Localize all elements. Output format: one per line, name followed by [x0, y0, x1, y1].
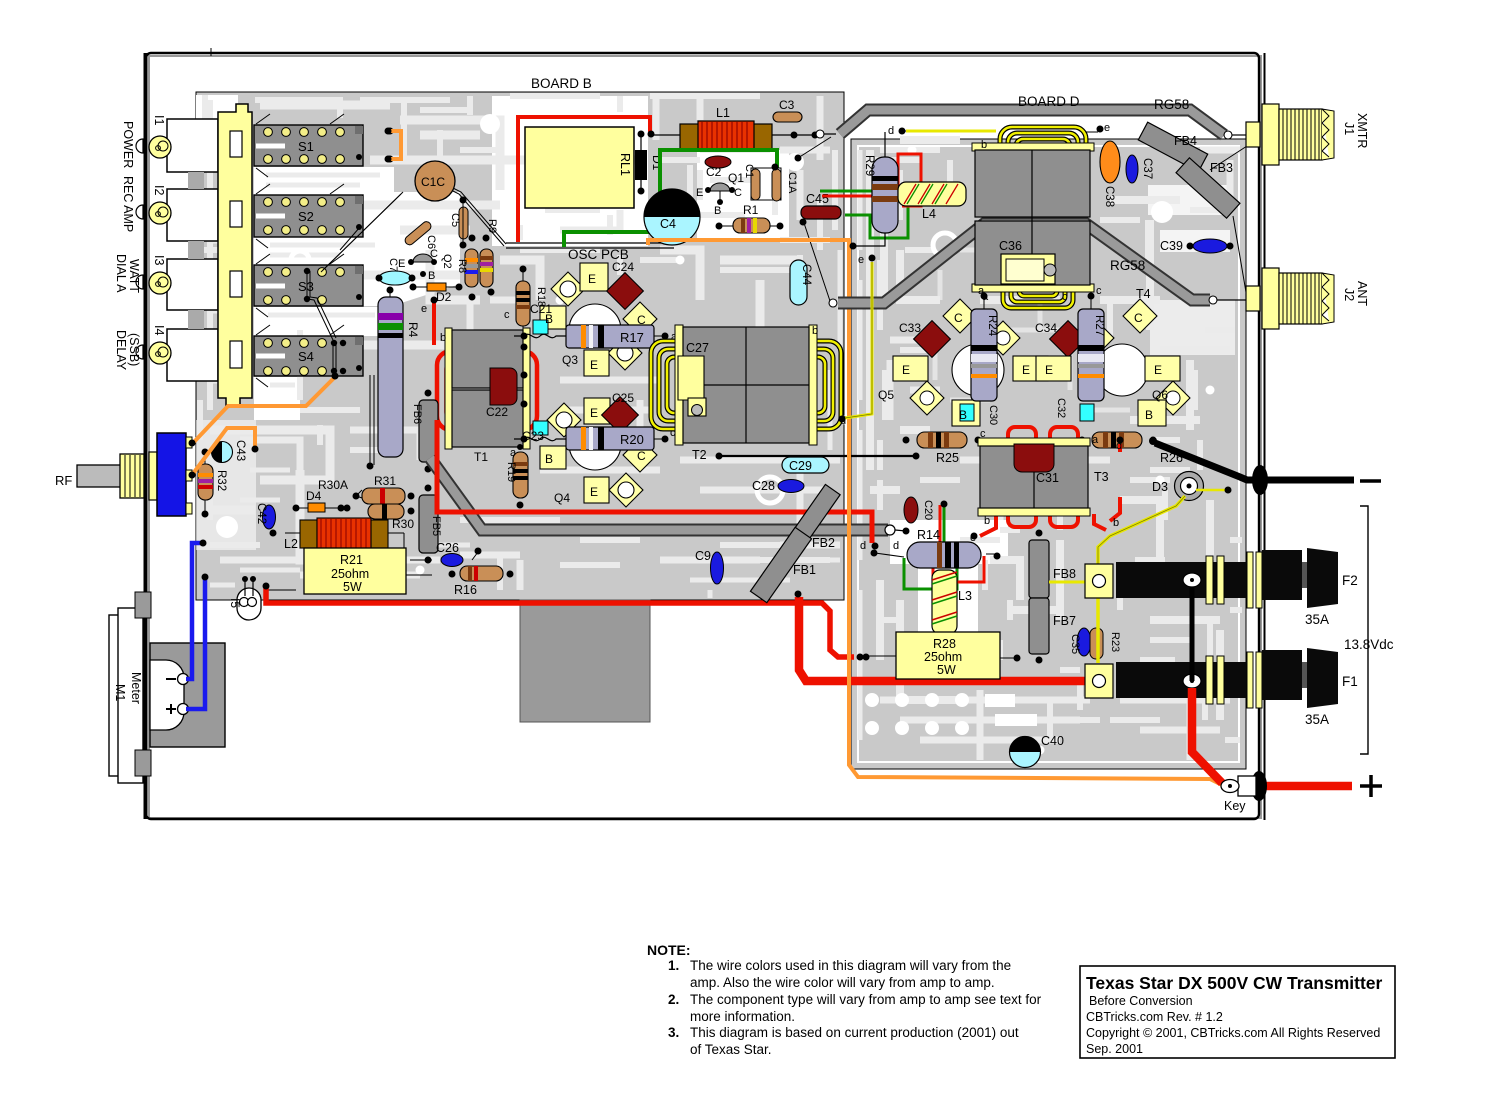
svg-text:E: E — [696, 187, 703, 199]
svg-text:Q3: Q3 — [562, 353, 578, 367]
svg-text:35A: 35A — [1305, 712, 1329, 727]
svg-text:Key: Key — [1224, 799, 1246, 813]
svg-text:R25: R25 — [936, 451, 959, 465]
svg-text:R30A: R30A — [318, 478, 348, 492]
svg-text:R29: R29 — [863, 155, 875, 176]
svg-text:L3: L3 — [958, 589, 972, 603]
svg-text:E: E — [1045, 363, 1053, 377]
svg-text:b: b — [981, 139, 987, 151]
svg-text:C: C — [954, 311, 963, 325]
svg-text:C30: C30 — [987, 405, 999, 425]
svg-text:C32: C32 — [1055, 398, 1067, 418]
svg-text:C21: C21 — [530, 302, 552, 316]
svg-text:D4: D4 — [306, 489, 322, 503]
svg-text:d: d — [893, 540, 899, 552]
svg-text:R31: R31 — [374, 474, 396, 488]
svg-text:OSC PCB: OSC PCB — [568, 247, 629, 262]
svg-text:J2: J2 — [1342, 288, 1356, 301]
svg-text:E: E — [1154, 363, 1162, 377]
svg-text:M1: M1 — [113, 684, 127, 701]
svg-text:C38: C38 — [1103, 186, 1115, 207]
svg-text:more information.: more information. — [690, 1009, 795, 1024]
svg-text:C: C — [734, 187, 742, 199]
svg-text:E: E — [1022, 363, 1030, 377]
svg-text:C4: C4 — [660, 217, 676, 231]
svg-text:REC AMP: REC AMP — [121, 176, 135, 232]
svg-text:T4: T4 — [1136, 287, 1151, 301]
svg-text:The component type will vary f: The component type will vary from amp to… — [690, 992, 1042, 1007]
svg-text:2.: 2. — [668, 992, 679, 1007]
svg-text:13.8Vdc: 13.8Vdc — [1344, 637, 1394, 652]
svg-text:S3: S3 — [298, 279, 314, 294]
svg-text:C34: C34 — [1035, 321, 1057, 335]
svg-text:C39: C39 — [1160, 239, 1183, 253]
svg-text:25ohm: 25ohm — [331, 567, 369, 581]
svg-text:d: d — [888, 125, 894, 137]
svg-text:FB1: FB1 — [793, 563, 816, 577]
svg-text:F1: F1 — [1342, 674, 1358, 689]
svg-text:R30: R30 — [392, 517, 414, 531]
svg-text:C5: C5 — [449, 213, 461, 227]
svg-text:C20: C20 — [922, 500, 934, 520]
svg-text:C23: C23 — [522, 429, 544, 443]
svg-text:FB7: FB7 — [1053, 614, 1076, 628]
svg-text:T3: T3 — [1094, 470, 1109, 484]
svg-text:FB8: FB8 — [1053, 567, 1076, 581]
svg-text:B: B — [545, 452, 553, 466]
svg-text:L2: L2 — [284, 537, 298, 551]
svg-text:F2: F2 — [1342, 573, 1358, 588]
svg-text:I2: I2 — [152, 185, 166, 195]
svg-text:T1: T1 — [474, 450, 488, 464]
svg-text:Sep. 2001: Sep. 2001 — [1086, 1042, 1143, 1056]
svg-text:c: c — [1096, 285, 1102, 297]
svg-text:C45: C45 — [806, 192, 829, 206]
svg-text:R14: R14 — [917, 528, 940, 542]
svg-text:FB4: FB4 — [1174, 134, 1197, 148]
svg-text:b: b — [812, 325, 818, 337]
svg-text:T2: T2 — [692, 448, 707, 462]
svg-text:C29: C29 — [789, 459, 812, 473]
svg-text:R19: R19 — [505, 462, 517, 482]
svg-text:R9: R9 — [486, 219, 498, 233]
svg-text:e: e — [1104, 122, 1110, 134]
svg-text:35A: 35A — [1305, 612, 1329, 627]
svg-text:of Texas Star.: of Texas Star. — [690, 1042, 772, 1057]
svg-text:Texas Star DX 500V CW Transmit: Texas Star DX 500V CW Transmitter — [1086, 973, 1383, 993]
svg-text:e: e — [421, 303, 427, 315]
svg-text:3.: 3. — [668, 1025, 679, 1040]
svg-text:R32: R32 — [215, 470, 227, 491]
svg-text:Q1: Q1 — [728, 171, 744, 185]
svg-text:C27: C27 — [686, 341, 709, 355]
svg-text:C: C — [637, 313, 646, 327]
svg-text:CBTricks.com Rev. # 1.2: CBTricks.com Rev. # 1.2 — [1086, 1010, 1223, 1024]
svg-text:amp. Also the wire color will: amp. Also the wire color will vary from … — [690, 975, 995, 990]
svg-text:C: C — [1134, 311, 1143, 325]
svg-text:S1: S1 — [298, 139, 314, 154]
svg-text:C36: C36 — [999, 239, 1022, 253]
svg-text:BOARD D: BOARD D — [1018, 94, 1080, 109]
svg-text:C9: C9 — [695, 549, 711, 563]
svg-text:C24: C24 — [612, 260, 634, 274]
svg-text:Before Conversion: Before Conversion — [1089, 994, 1193, 1008]
svg-text:Q4: Q4 — [554, 491, 570, 505]
svg-text:R21: R21 — [340, 553, 363, 567]
svg-text:C: C — [637, 449, 646, 463]
svg-text:R8: R8 — [456, 259, 468, 273]
svg-text:C: C — [430, 248, 438, 260]
svg-text:E: E — [590, 485, 598, 499]
svg-text:C33: C33 — [899, 321, 921, 335]
svg-text:1.: 1. — [668, 958, 679, 973]
svg-text:R23: R23 — [1109, 632, 1121, 652]
svg-text:FB6: FB6 — [411, 404, 423, 424]
svg-text:C43: C43 — [234, 440, 246, 461]
svg-text:c: c — [980, 428, 986, 440]
svg-text:I4: I4 — [152, 325, 166, 335]
svg-text:B: B — [959, 408, 967, 422]
svg-text:RL1: RL1 — [618, 153, 632, 176]
svg-text:S2: S2 — [298, 209, 314, 224]
svg-text:E: E — [902, 363, 910, 377]
svg-text:b: b — [440, 332, 446, 344]
svg-text:E: E — [590, 406, 598, 420]
svg-text:e: e — [858, 254, 864, 266]
svg-text:C26: C26 — [436, 541, 459, 555]
svg-text:B: B — [428, 270, 435, 282]
svg-text:c: c — [1062, 291, 1068, 303]
svg-text:B: B — [1145, 408, 1153, 422]
svg-text:C6: C6 — [425, 235, 437, 249]
svg-text:b: b — [1113, 517, 1119, 529]
svg-text:DELAY: DELAY — [114, 330, 128, 371]
svg-text:C42: C42 — [255, 503, 267, 524]
svg-text:DIAL A: DIAL A — [114, 254, 128, 293]
svg-text:Meter: Meter — [129, 672, 143, 704]
svg-text:C31: C31 — [1036, 471, 1059, 485]
svg-text:L1: L1 — [716, 106, 730, 120]
svg-text:R16: R16 — [454, 583, 477, 597]
svg-text:d: d — [860, 540, 866, 552]
svg-text:RF: RF — [55, 473, 72, 488]
svg-text:Q5: Q5 — [878, 388, 894, 402]
svg-text:R27: R27 — [1093, 315, 1105, 336]
svg-text:C1: C1 — [743, 164, 755, 178]
svg-text:This diagram is based on curre: This diagram is based on current product… — [690, 1025, 1019, 1040]
svg-text:R28: R28 — [933, 637, 956, 651]
svg-text:I5: I5 — [228, 598, 242, 608]
svg-text:(SSB): (SSB) — [127, 333, 141, 366]
svg-text:XMTR: XMTR — [1355, 113, 1369, 148]
svg-text:I3: I3 — [152, 255, 166, 265]
svg-text:C40: C40 — [1041, 734, 1064, 748]
svg-text:Q6: Q6 — [1152, 388, 1168, 402]
svg-text:J1: J1 — [1342, 122, 1356, 135]
svg-text:FB5: FB5 — [430, 516, 442, 536]
svg-text:b: b — [984, 515, 990, 527]
svg-text:Q2: Q2 — [441, 254, 453, 269]
svg-text:R24: R24 — [986, 315, 998, 337]
svg-text:The wire colors used in this d: The wire colors used in this diagram wil… — [690, 958, 1011, 973]
svg-text:E: E — [588, 272, 596, 286]
svg-text:L4: L4 — [922, 207, 936, 221]
svg-text:R4: R4 — [406, 322, 420, 338]
svg-text:a: a — [1092, 434, 1099, 446]
svg-text:B: B — [714, 205, 721, 217]
svg-text:R17: R17 — [620, 330, 644, 345]
svg-text:Copyright © 2001, CBTricks.com: Copyright © 2001, CBTricks.com All Right… — [1086, 1026, 1380, 1040]
svg-text:RG58: RG58 — [1110, 258, 1145, 273]
svg-text:I1: I1 — [152, 115, 166, 125]
svg-text:C44: C44 — [800, 264, 812, 286]
svg-text:D2: D2 — [436, 290, 452, 304]
svg-text:POWER: POWER — [121, 121, 135, 168]
svg-text:FB2: FB2 — [812, 536, 835, 550]
svg-text:ANT: ANT — [1355, 281, 1369, 306]
svg-text:E: E — [590, 358, 598, 372]
svg-text:5W: 5W — [343, 580, 362, 594]
svg-text:WATT: WATT — [127, 259, 141, 293]
svg-text:c: c — [504, 309, 510, 321]
svg-text:5W: 5W — [937, 663, 956, 677]
svg-text:C1A: C1A — [786, 172, 798, 194]
svg-text:D3: D3 — [1152, 480, 1168, 494]
svg-text:C3: C3 — [779, 98, 795, 112]
svg-text:R20: R20 — [620, 432, 644, 447]
svg-text:C28: C28 — [752, 479, 775, 493]
svg-text:S4: S4 — [298, 349, 314, 364]
svg-text:R1: R1 — [743, 203, 759, 217]
svg-text:C35: C35 — [1069, 634, 1081, 654]
svg-text:C25: C25 — [612, 391, 634, 405]
svg-text:C22: C22 — [486, 405, 508, 419]
svg-text:C1C: C1C — [421, 175, 445, 189]
svg-text:25ohm: 25ohm — [924, 650, 962, 664]
svg-text:RG58: RG58 — [1154, 97, 1189, 112]
svg-text:NOTE:: NOTE: — [647, 942, 691, 958]
svg-text:a: a — [978, 285, 985, 297]
svg-text:C37: C37 — [1141, 158, 1153, 179]
svg-text:BOARD B: BOARD B — [531, 76, 592, 91]
svg-text:E: E — [398, 258, 405, 270]
svg-text:C2: C2 — [706, 165, 722, 179]
